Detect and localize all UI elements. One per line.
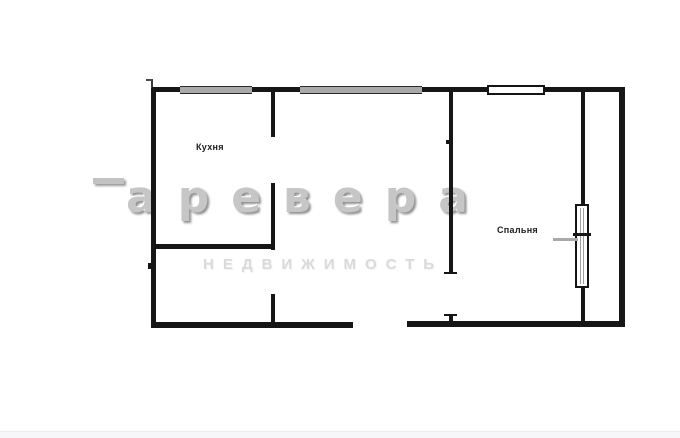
wall-bedroom-left	[449, 92, 453, 273]
wall-balcony-lower	[581, 287, 585, 325]
label-bedroom: Спальня	[497, 225, 538, 235]
window-middle-room	[300, 86, 422, 94]
window-balcony-pane-line	[583, 208, 584, 284]
watermark-dash	[93, 178, 124, 184]
wall-left	[151, 88, 156, 328]
watermark-brand: аревера	[126, 172, 490, 223]
wall-kitchen-right-lower	[271, 294, 275, 326]
door-stub-cap	[444, 314, 457, 316]
wall-bottom-left	[151, 322, 353, 328]
window-bedroom-top	[487, 85, 545, 95]
wall-balcony-upper	[581, 92, 585, 205]
door-stub	[449, 315, 453, 326]
footer-strip	[0, 431, 680, 438]
label-kitchen: Кухня	[196, 142, 224, 152]
wall-right	[619, 88, 625, 327]
wall-left-tick	[148, 263, 152, 269]
wall-bedroom-left-end-cap	[444, 272, 457, 274]
window-sill-tick	[553, 238, 578, 241]
wall-bottom-right	[407, 321, 625, 327]
wall-kitchen-right-middle	[271, 183, 275, 250]
floor-plan: аревера НЕДВИЖИМОСТЬ Кухня Спальня	[0, 0, 680, 438]
window-balcony-divider	[573, 233, 591, 236]
window-balcony-pane-line	[580, 208, 581, 284]
wall-kitchen-bottom	[151, 244, 275, 249]
window-kitchen	[180, 86, 252, 94]
watermark-subtitle: НЕДВИЖИМОСТЬ	[203, 256, 443, 273]
wall-bedroom-left-tick	[446, 140, 450, 144]
wall-kitchen-right-upper	[271, 90, 275, 137]
window-balcony	[575, 204, 589, 288]
